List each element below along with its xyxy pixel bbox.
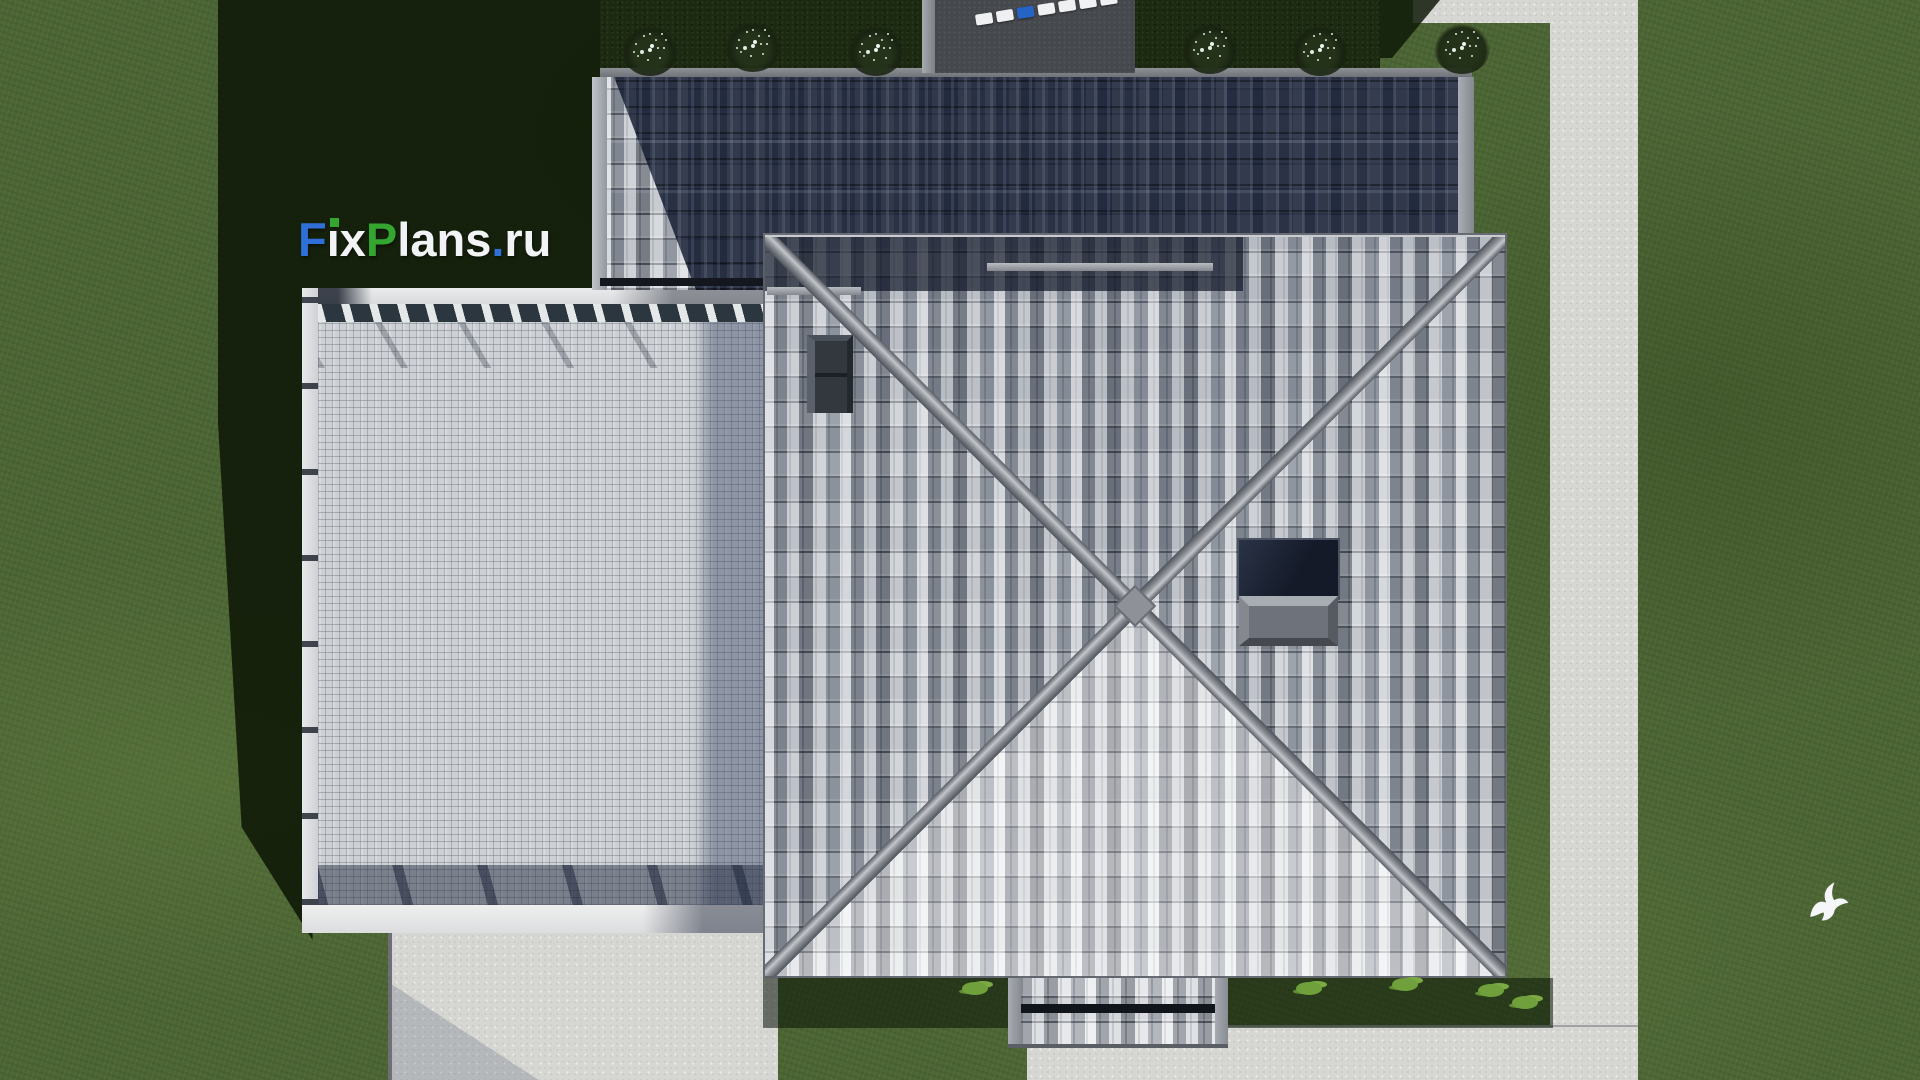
gate-segment bbox=[996, 9, 1015, 23]
watermark-segment: i bbox=[327, 212, 340, 267]
gate-segment bbox=[1058, 0, 1077, 13]
porch-roof bbox=[1008, 978, 1228, 1048]
watermark-segment: ru bbox=[504, 212, 551, 267]
flower-bush bbox=[725, 22, 781, 72]
roof-seam bbox=[600, 140, 1472, 143]
terrace-railing-shadow-bottom bbox=[318, 865, 763, 905]
flower-bush bbox=[622, 26, 678, 76]
sidewalk-vertical bbox=[1550, 0, 1638, 1030]
flower-bush bbox=[1434, 24, 1490, 74]
porch-ridge bbox=[1018, 1004, 1218, 1013]
terrace bbox=[302, 288, 763, 933]
gate-segment bbox=[1037, 2, 1056, 16]
watermark-segment: lans bbox=[397, 212, 491, 267]
watermark-segment: P bbox=[366, 212, 397, 267]
aerial-render: FixPlans.ru bbox=[0, 0, 1920, 1080]
watermark-segment: x bbox=[340, 212, 366, 267]
railing-shadows bbox=[318, 322, 693, 368]
grass-tuft bbox=[1296, 982, 1322, 995]
grass-tuft bbox=[1392, 978, 1418, 991]
flower-bush bbox=[1182, 24, 1238, 74]
terrace-shadow bbox=[693, 322, 763, 905]
gate-segment bbox=[975, 12, 994, 26]
garage-fascia-left bbox=[592, 77, 607, 290]
flower-bush bbox=[848, 26, 904, 76]
grass-tuft bbox=[962, 982, 988, 995]
watermark: FixPlans.ru bbox=[298, 212, 551, 267]
pad-bottom-left bbox=[388, 933, 778, 1080]
porch-wall-left bbox=[1008, 978, 1021, 1048]
roof-seam bbox=[600, 190, 1472, 193]
gate-segment bbox=[1079, 0, 1098, 9]
roof-fascia bbox=[763, 233, 1507, 978]
sidewalk-top bbox=[1413, 0, 1638, 23]
garage-trim-right bbox=[1458, 77, 1474, 235]
terrace-border-left bbox=[302, 288, 318, 905]
porch-eave bbox=[1008, 1044, 1228, 1048]
gate-segment-blue bbox=[1016, 6, 1035, 20]
main-hip-roof bbox=[763, 233, 1507, 978]
gate-segment bbox=[1099, 0, 1118, 6]
watermark-segment: F bbox=[298, 212, 327, 267]
watermark-segment: . bbox=[491, 212, 504, 267]
porch-wall-right bbox=[1215, 978, 1228, 1048]
terrace-railing-top bbox=[318, 304, 763, 322]
grass-tuft bbox=[1478, 984, 1504, 997]
terrace-border-top bbox=[302, 288, 763, 304]
flower-bush bbox=[1292, 26, 1348, 76]
grass-tuft bbox=[1512, 996, 1538, 1009]
terrace-border-bottom bbox=[302, 905, 763, 933]
walkway-wall bbox=[922, 0, 935, 73]
